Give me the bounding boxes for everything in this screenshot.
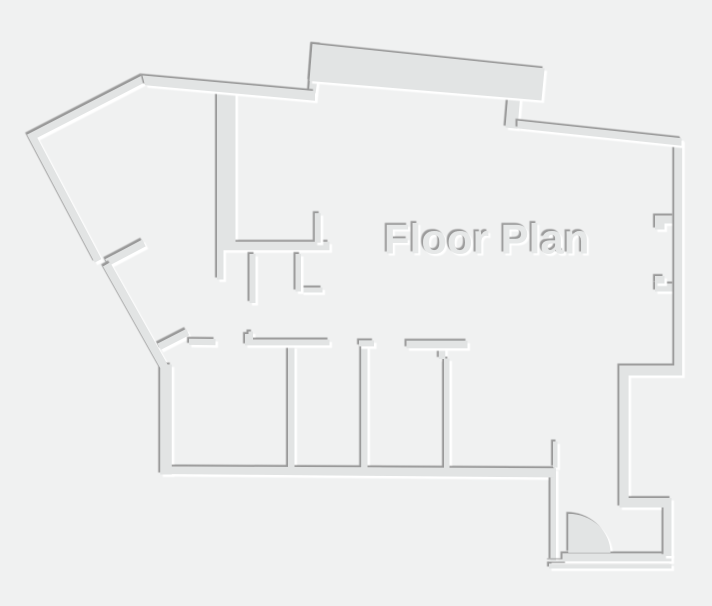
svg-text:Floor Plan: Floor Plan (384, 216, 589, 263)
